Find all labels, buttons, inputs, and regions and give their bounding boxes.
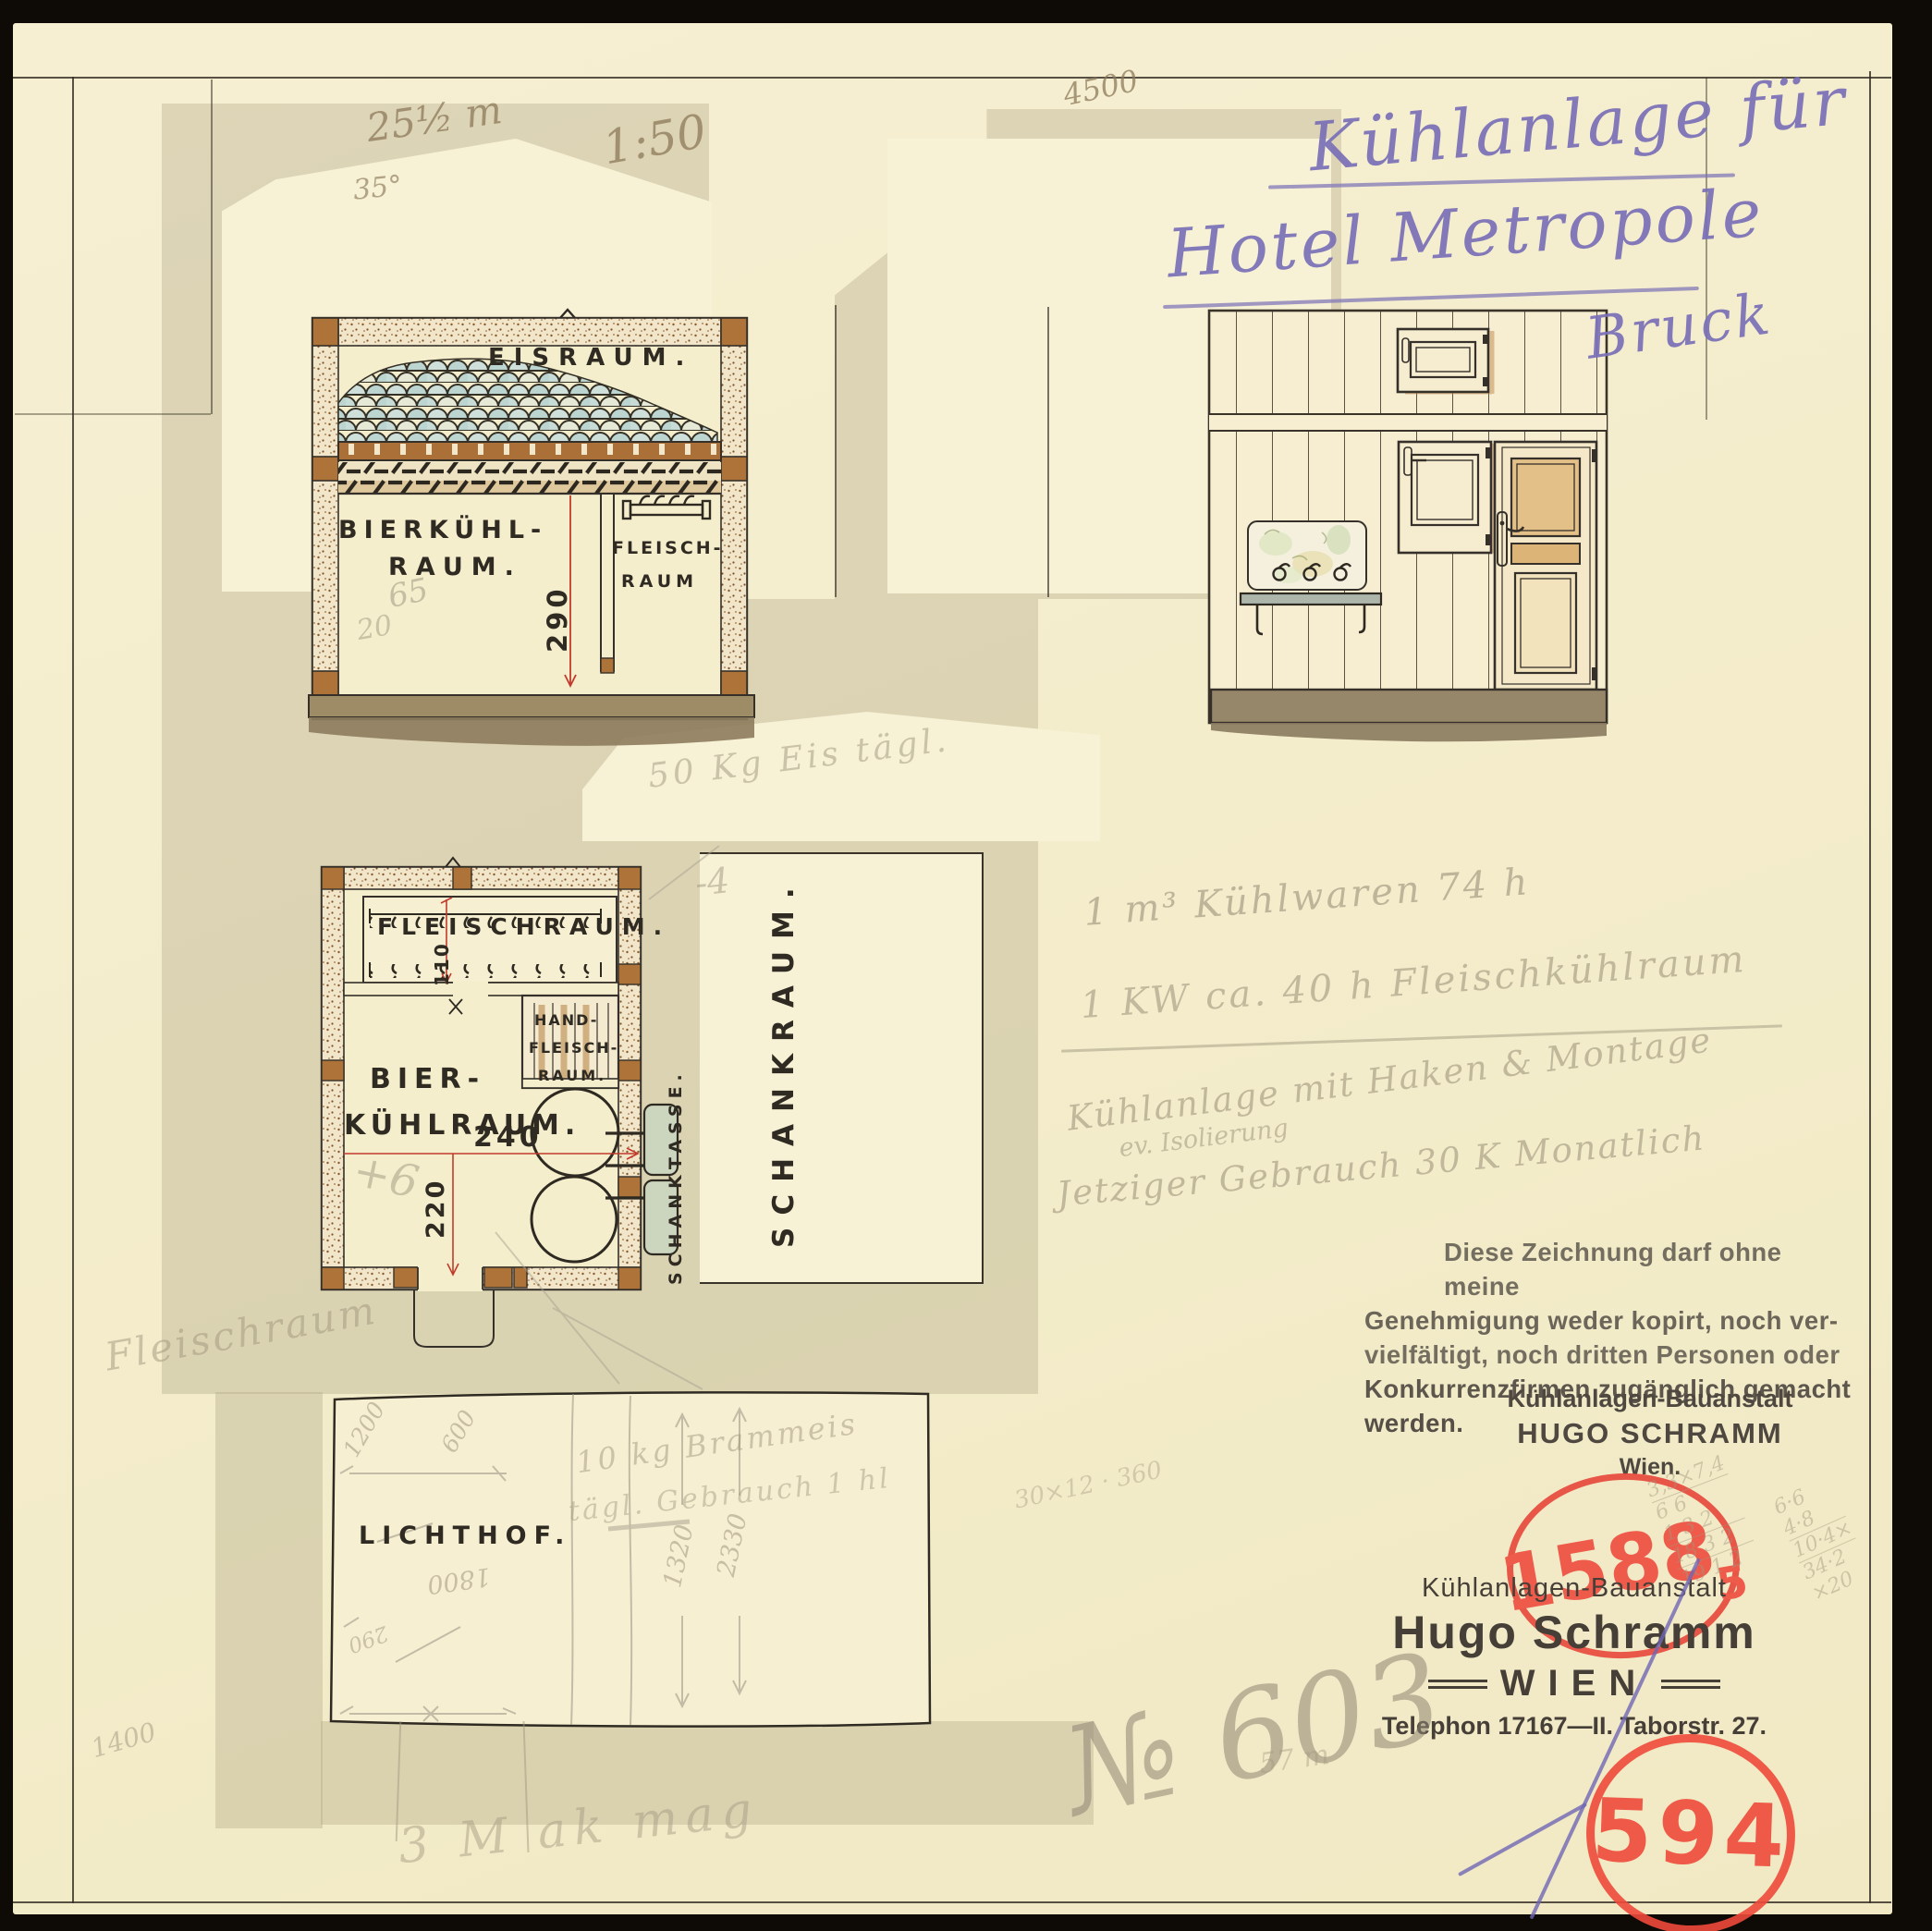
file-number: 594: [1590, 1780, 1791, 1888]
frame-line-right: [1869, 71, 1871, 1903]
label-eisraum: EISRAUM.: [488, 346, 693, 371]
firm-line: Kühlanlagen-Bauanstalt: [1461, 1385, 1840, 1413]
label-schanktasse: SCHANKTASSE.: [667, 1072, 686, 1285]
pencil-minus4: -4: [693, 860, 731, 904]
frame-line-left: [72, 77, 74, 1903]
wash-block: [215, 1392, 323, 1828]
frame-line-bottom: [13, 1901, 1891, 1903]
firm-line: Hugo Schramm: [1376, 1606, 1773, 1659]
double-rule: [1661, 1680, 1720, 1689]
label-schankraum: SCHANKRAUM.: [769, 906, 800, 1248]
label-fleischraum-1: FLEISCH-: [612, 540, 724, 558]
firm-city: WIEN: [1500, 1663, 1648, 1705]
elevation-drawing: [1200, 301, 1616, 750]
layout-line: [1047, 307, 1049, 597]
pencil-35: 35°: [351, 169, 404, 206]
pencil-20: 20: [354, 609, 395, 647]
dimension-110: 110: [433, 920, 452, 986]
disclaimer-line: Genehmigung weder kopirt, noch ver-: [1364, 1303, 1856, 1338]
label-plan-bier-1: BIER-: [370, 1065, 485, 1094]
margin-line: [15, 413, 211, 415]
label-plan-bier-2: KÜHLRAUM.: [344, 1111, 581, 1141]
dimension-290: 290: [544, 560, 571, 653]
schankraum-area: [700, 852, 984, 1284]
firm-line: HUGO SCHRAMM: [1461, 1417, 1840, 1450]
layout-line: [835, 305, 837, 597]
disclaimer-line: Diese Zeichnung darf ohne meine: [1364, 1235, 1856, 1303]
dimension-240: 240: [473, 1123, 543, 1153]
scanned-drawing-sheet: EISRAUM. BIERKÜHL- RAUM. FLEISCH- RAUM 2…: [0, 0, 1932, 1931]
disclaimer-line: vielfältigt, noch dritten Personen oder: [1364, 1338, 1856, 1372]
label-plan-fleischraum: FLEISCHRAUM.: [377, 915, 670, 939]
dimension-220: 220: [423, 1155, 449, 1239]
label-hand-3: RAUM.: [538, 1069, 606, 1084]
margin-line: [211, 79, 213, 414]
label-fleischraum-2: RAUM: [621, 573, 698, 592]
label-hand-2: FLEISCH-: [529, 1041, 618, 1057]
frame-line-top: [13, 77, 1891, 79]
label-hand-1: HAND-: [534, 1013, 598, 1029]
label-bierkuehlraum-1: BIERKÜHL-: [338, 518, 547, 544]
firm-stamp-small: Kühlanlagen-Bauanstalt HUGO SCHRAMM Wien…: [1461, 1385, 1840, 1481]
label-lichthof: LICHTHOF.: [359, 1523, 571, 1549]
